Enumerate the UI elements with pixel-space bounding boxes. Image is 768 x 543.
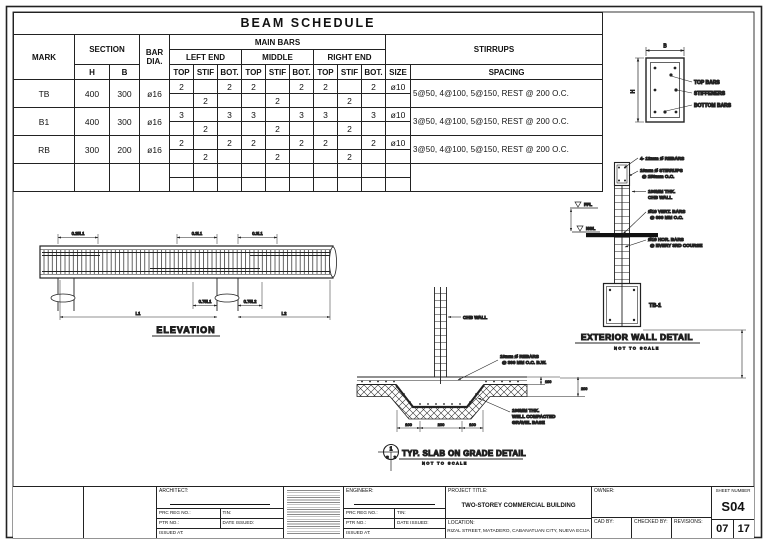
schedule-cell <box>266 178 290 192</box>
schedule-body: TB400300ø16222222ø105@50, 4@100, 5@150, … <box>14 80 603 192</box>
schedule-cell: 2 <box>290 80 314 94</box>
schedule-cell <box>218 94 242 108</box>
size-cell: ø10 <box>386 108 411 122</box>
prc-label: PRC REG NO.: <box>157 509 220 518</box>
schedule-cell: 2 <box>170 136 194 150</box>
schedule-cell <box>140 164 170 192</box>
top-bars-label: TOP BARS <box>694 80 720 86</box>
col-b: B <box>110 65 140 80</box>
date-issued-label: DATE ISSUED: <box>220 519 284 528</box>
schedule-cell: 2 <box>266 122 290 136</box>
bottom-bars-label: BOTTOM BARS <box>694 103 732 109</box>
revisions-label: REVISIONS: <box>672 518 711 525</box>
elevation-detail: 0.25L1 0.3L1 0.3L1 0.75L1 0.75L2 L1 L2 E… <box>40 231 337 336</box>
schedule-cell <box>362 94 386 108</box>
mark-cell <box>14 164 75 192</box>
col-mark: MARK <box>14 35 75 80</box>
size-cell: ø10 <box>386 136 411 150</box>
logo-box <box>13 487 84 538</box>
mark-cell: TB <box>14 80 75 108</box>
bubble-sheet: 2 <box>394 455 397 460</box>
notes-box <box>284 487 344 538</box>
wall-note: Ø10 VERT. BARS <box>648 209 685 214</box>
wall-note: Ø10 HOR. BARS <box>648 237 684 242</box>
schedule-cell <box>242 164 266 178</box>
elev-dim: 0.25L1 <box>72 231 85 236</box>
schedule-cell <box>314 94 338 108</box>
dim-b-label: B <box>663 44 667 50</box>
spacing-cell <box>411 164 603 192</box>
elev-dim: 0.75L1 <box>199 299 212 304</box>
schedule-cell <box>194 136 218 150</box>
schedule-cell: 2 <box>194 150 218 164</box>
wall-detail-subtitle: NOT TO SCALE <box>614 347 660 351</box>
schedule-cell <box>290 150 314 164</box>
schedule-title: BEAM SCHEDULE <box>14 13 603 35</box>
schedule-cell <box>338 80 362 94</box>
slab-note: WELL COMPACTED <box>512 414 556 419</box>
project-title-box: PROJECT TITLE: TWO-STOREY COMMERCIAL BUI… <box>446 487 592 538</box>
schedule-cell: 3 <box>170 108 194 122</box>
schedule-cell: 2 <box>314 80 338 94</box>
schedule-cell <box>338 164 362 178</box>
col-section: SECTION <box>75 35 140 65</box>
size-cell <box>386 178 411 192</box>
schedule-cell <box>170 122 194 136</box>
schedule-cell: 2 <box>338 150 362 164</box>
schedule-cell <box>338 178 362 192</box>
wall-detail-title: EXTERIOR WALL DETAIL <box>581 332 693 342</box>
schedule-cell: 2 <box>218 136 242 150</box>
schedule-cell: ø16 <box>140 80 170 108</box>
ptr-label: PTR NO.: <box>344 519 394 528</box>
spacing-cell: 3@50, 4@100, 5@150, REST @ 200 O.C. <box>411 136 603 164</box>
elev-dim: 0.3L1 <box>192 231 203 236</box>
checked-by-cell: CHECKED BY: <box>631 518 671 538</box>
ngl-label: NGL <box>586 226 596 231</box>
checked-by-label: CHECKED BY: <box>632 518 671 525</box>
schedule-cell <box>218 150 242 164</box>
sheet-number-value: S04 <box>712 494 754 519</box>
schedule-cell: 2 <box>362 80 386 94</box>
schedule-cell <box>170 164 194 178</box>
schedule-cell: 2 <box>194 94 218 108</box>
schedule-cell <box>338 108 362 122</box>
col-bar: BAR <box>140 48 169 57</box>
schedule-cell <box>362 178 386 192</box>
location-value: RIZAL STREET, MATADERO, CABANATUAN CITY,… <box>446 526 591 538</box>
schedule-cell: 200 <box>110 136 140 164</box>
engineer-label: ENGINEER: <box>344 487 445 494</box>
slab-note: @ 300 MM O.C. B.W. <box>502 360 546 365</box>
architect-signature <box>157 494 283 508</box>
col-stif: STIF <box>338 65 362 80</box>
schedule-cell <box>218 164 242 178</box>
wall-note: 100MM THK. <box>648 189 675 194</box>
ptr-label: PTR NO.: <box>157 519 220 528</box>
schedule-cell <box>266 136 290 150</box>
schedule-cell <box>338 136 362 150</box>
elev-dim: 0.3L1 <box>252 231 263 236</box>
schedule-cell: ø16 <box>140 108 170 136</box>
schedule-cell: 3 <box>242 108 266 122</box>
col-bot: BOT. <box>290 65 314 80</box>
slab-note: 100MM THK. <box>512 408 539 413</box>
slab-detail-subtitle: NOT TO SCALE <box>422 462 468 466</box>
col-stif: STIF <box>266 65 290 80</box>
schedule-cell: 2 <box>266 94 290 108</box>
schedule-cell <box>194 164 218 178</box>
stiffeners-label: STIFFENERS <box>694 91 726 97</box>
schedule-cell <box>290 164 314 178</box>
slab-note: GRAVEL BASE <box>512 420 545 425</box>
title-block: ARCHITECT: PRC REG NO.: TIN: PTR NO.: DA… <box>13 486 754 538</box>
schedule-cell <box>110 164 140 192</box>
beam-schedule-table: BEAM SCHEDULE MARK SECTION BAR DIA. MAIN… <box>13 12 603 192</box>
schedule-cell <box>290 94 314 108</box>
schedule-cell <box>242 150 266 164</box>
mark-cell: RB <box>14 136 75 164</box>
sheet-number-label: SHEET NUMBER <box>712 487 754 494</box>
slab-dim: 100 <box>405 422 412 427</box>
revisions-cell: REVISIONS: <box>671 518 711 538</box>
col-bot: BOT. <box>218 65 242 80</box>
col-top: TOP <box>170 65 194 80</box>
schedule-cell <box>242 178 266 192</box>
col-dia: DIA. <box>140 57 169 66</box>
bubble-number: 1 <box>390 447 393 453</box>
schedule-cell <box>170 178 194 192</box>
sheet-number-box: SHEET NUMBER S04 07 17 <box>712 487 754 538</box>
schedule-cell: 300 <box>110 80 140 108</box>
col-spacing: SPACING <box>411 65 603 80</box>
col-left-end: LEFT END <box>170 50 242 65</box>
wall-note: @ 600 MM O.C. <box>650 215 683 220</box>
schedule-cell: 300 <box>75 136 110 164</box>
elev-dim: 0.75L2 <box>244 299 257 304</box>
spacing-cell: 3@50, 4@100, 5@150, REST @ 200 O.C. <box>411 108 603 136</box>
schedule-cell <box>362 164 386 178</box>
col-bot: BOT. <box>362 65 386 80</box>
schedule-cell <box>362 150 386 164</box>
location-label: LOCATION: <box>446 519 591 526</box>
prc-label: PRC REG NO.: <box>344 509 394 518</box>
cad-by-label: CAD BY: <box>592 518 631 525</box>
size-cell <box>386 122 411 136</box>
schedule-cell <box>194 80 218 94</box>
elevation-title: ELEVATION <box>156 325 215 335</box>
engineer-box: ENGINEER: PRC REG NO.: TIN: PTR NO.: DAT… <box>344 487 446 538</box>
schedule-cell: 400 <box>75 108 110 136</box>
schedule-row: B1400300ø16333333ø103@50, 4@100, 5@150, … <box>14 108 603 122</box>
footing-tag: TB-1 <box>649 303 661 309</box>
elev-span-dim: L1 <box>135 311 141 316</box>
schedule-cell <box>75 164 110 192</box>
beam-section-detail: B H TOP BARS STIFFENERS BOTTOM BARS <box>631 44 732 123</box>
schedule-cell: 2 <box>218 80 242 94</box>
schedule-cell: 3 <box>290 108 314 122</box>
architect-box: ARCHITECT: PRC REG NO.: TIN: PTR NO.: DA… <box>157 487 284 538</box>
bubble-sheet: S <box>386 455 389 460</box>
architect-label: ARCHITECT: <box>157 487 283 494</box>
schedule-cell <box>194 108 218 122</box>
col-h: H <box>75 65 110 80</box>
slab-dim: 200 <box>581 387 587 391</box>
size-cell <box>386 164 411 178</box>
col-stif: STIF <box>194 65 218 80</box>
schedule-cell <box>314 178 338 192</box>
schedule-cell <box>266 80 290 94</box>
date-issued-label: DATE ISSUED: <box>394 519 445 528</box>
seal-box <box>84 487 157 538</box>
schedule-cell: 2 <box>362 136 386 150</box>
schedule-cell <box>242 94 266 108</box>
col-top: TOP <box>242 65 266 80</box>
schedule-cell: 3 <box>314 108 338 122</box>
schedule-cell: 2 <box>290 136 314 150</box>
col-size: SIZE <box>386 65 411 80</box>
issued-at-label: ISSUED AT: <box>157 529 283 538</box>
schedule-cell: 2 <box>242 136 266 150</box>
schedule-cell: 2 <box>338 94 362 108</box>
schedule-cell <box>218 178 242 192</box>
schedule-row: TB400300ø16222222ø105@50, 4@100, 5@150, … <box>14 80 603 94</box>
col-right-end: RIGHT END <box>314 50 386 65</box>
wall-note: CHB WALL <box>648 195 672 200</box>
slab-note: 10mm Ø REBARS <box>500 354 539 359</box>
wall-note: @ EVERY 3RD COURSE <box>650 243 702 248</box>
drawing-sheet: { "beam_schedule": { "title": "BEAM SCHE… <box>0 0 768 543</box>
schedule-row <box>14 164 603 178</box>
mark-cell: B1 <box>14 108 75 136</box>
slab-note: CHB WALL <box>463 315 487 320</box>
dim-h-label: H <box>631 89 637 93</box>
issued-at-label: ISSUED AT: <box>344 529 445 538</box>
elev-span-dim: L2 <box>281 311 287 316</box>
schedule-cell: 2 <box>314 136 338 150</box>
slab-dim: 100 <box>469 422 476 427</box>
owner-box: OWNER: CAD BY: CHECKED BY: REVISIONS: <box>592 487 712 538</box>
schedule-cell <box>194 178 218 192</box>
schedule-cell <box>314 164 338 178</box>
fine-print-text <box>287 490 340 535</box>
wall-note: @ 150mm O.C. <box>642 174 674 179</box>
col-bar-dia: BAR DIA. <box>140 35 170 80</box>
schedule-cell: ø16 <box>140 136 170 164</box>
schedule-cell <box>218 122 242 136</box>
slab-detail-title: TYP. SLAB ON GRADE DETAIL <box>402 449 526 458</box>
sheet-page: 07 <box>712 520 733 538</box>
tin-label: TIN: <box>394 509 445 518</box>
schedule-cell: 300 <box>110 108 140 136</box>
schedule-cell <box>242 122 266 136</box>
project-title-label: PROJECT TITLE: <box>446 487 591 494</box>
schedule-cell: 2 <box>338 122 362 136</box>
ffl-label: FFL <box>584 202 592 207</box>
schedule-cell: 2 <box>242 80 266 94</box>
schedule-cell: 2 <box>194 122 218 136</box>
size-cell <box>386 150 411 164</box>
col-stirrups: STIRRUPS <box>386 35 603 65</box>
schedule-cell: 400 <box>75 80 110 108</box>
slab-dim: 200 <box>438 422 445 427</box>
schedule-cell: 3 <box>362 108 386 122</box>
schedule-cell <box>314 150 338 164</box>
sheet-total: 17 <box>733 520 755 538</box>
schedule-cell <box>266 108 290 122</box>
schedule-cell <box>170 94 194 108</box>
schedule-cell <box>290 122 314 136</box>
size-cell <box>386 94 411 108</box>
project-title-value: TWO-STOREY COMMERCIAL BUILDING <box>446 494 591 518</box>
schedule-cell: 2 <box>266 150 290 164</box>
schedule-cell <box>290 178 314 192</box>
schedule-cell <box>314 122 338 136</box>
wall-note: 10mm Ø STIRRUPS <box>640 168 683 173</box>
wall-note: 4- 12mm Ø REBARS <box>640 156 684 161</box>
schedule-cell <box>266 164 290 178</box>
slab-dim: 100 <box>545 380 551 384</box>
spacing-cell: 5@50, 4@100, 5@150, REST @ 200 O.C. <box>411 80 603 108</box>
engineer-signature <box>344 494 445 508</box>
schedule-cell <box>362 122 386 136</box>
cad-by-cell: CAD BY: <box>592 518 631 538</box>
schedule-row: RB300200ø16222222ø103@50, 4@100, 5@150, … <box>14 136 603 150</box>
tin-label: TIN: <box>220 509 284 518</box>
size-cell: ø10 <box>386 80 411 94</box>
owner-label: OWNER: <box>592 487 711 494</box>
col-middle: MIDDLE <box>242 50 314 65</box>
schedule-cell: 3 <box>218 108 242 122</box>
schedule-cell <box>170 150 194 164</box>
schedule-cell: 2 <box>170 80 194 94</box>
col-main-bars: MAIN BARS <box>170 35 386 50</box>
col-top: TOP <box>314 65 338 80</box>
slab-on-grade-detail: CHB WALL 10mm Ø REBARS @ 300 MM O.C. B.W… <box>357 287 746 471</box>
